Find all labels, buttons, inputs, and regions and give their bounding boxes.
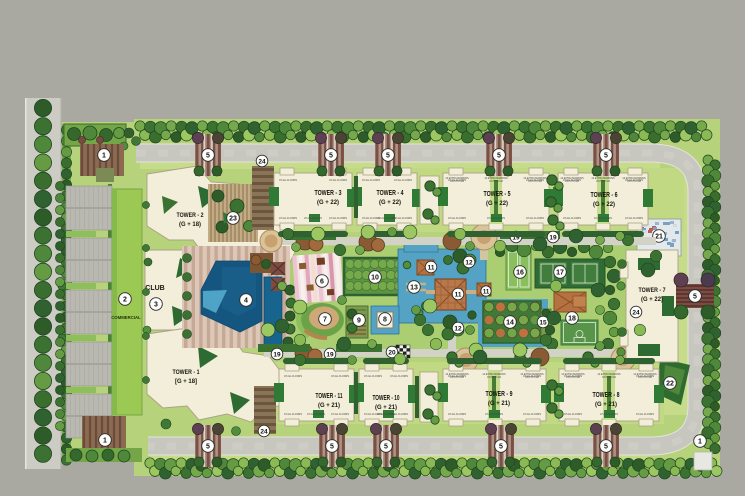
svg-text:5: 5 bbox=[604, 152, 608, 159]
svg-text:10: 10 bbox=[371, 274, 379, 281]
svg-text:ON 5TH FLR: ON 5TH FLR bbox=[602, 376, 616, 379]
svg-text:AT ALL FLOORS: AT ALL FLOORS bbox=[523, 413, 541, 416]
svg-text:5: 5 bbox=[384, 443, 388, 450]
svg-text:AT ALL FLOORS: AT ALL FLOORS bbox=[600, 413, 618, 416]
svg-text:AT ALL FLOORS: AT ALL FLOORS bbox=[284, 375, 302, 378]
svg-text:TOWER - 2: TOWER - 2 bbox=[177, 212, 204, 219]
svg-text:AT ALL FLOORS: AT ALL FLOORS bbox=[563, 217, 581, 220]
svg-text:AT ALL FLOORS: AT ALL FLOORS bbox=[448, 217, 466, 220]
svg-text:1: 1 bbox=[103, 437, 107, 444]
svg-text:(G + 21): (G + 21) bbox=[595, 401, 617, 408]
svg-text:5: 5 bbox=[329, 152, 333, 159]
svg-text:AT ALL FLOORS: AT ALL FLOORS bbox=[390, 375, 408, 378]
svg-text:24: 24 bbox=[632, 309, 640, 316]
svg-text:(G + 22): (G + 22) bbox=[486, 200, 508, 207]
svg-text:5: 5 bbox=[499, 443, 503, 450]
svg-text:(G + 18): (G + 18) bbox=[179, 221, 201, 228]
svg-text:AT ALL FLOORS: AT ALL FLOORS bbox=[523, 375, 541, 378]
svg-text:18: 18 bbox=[568, 315, 576, 322]
svg-text:1: 1 bbox=[698, 438, 702, 445]
svg-text:AT ALL FLOORS: AT ALL FLOORS bbox=[394, 217, 412, 220]
svg-text:17: 17 bbox=[556, 269, 564, 276]
svg-text:AT ALL FLOORS: AT ALL FLOORS bbox=[284, 413, 302, 416]
svg-text:5: 5 bbox=[386, 152, 390, 159]
svg-text:AT ALL FLOORS: AT ALL FLOORS bbox=[485, 413, 503, 416]
svg-text:COMMERCIAL: COMMERCIAL bbox=[111, 315, 141, 320]
svg-text:12: 12 bbox=[454, 325, 462, 332]
svg-text:AT ALL FLOORS: AT ALL FLOORS bbox=[394, 179, 412, 182]
svg-text:ON 5TH FLR: ON 5TH FLR bbox=[596, 180, 610, 183]
svg-text:AT ALL FLOORS: AT ALL FLOORS bbox=[636, 375, 654, 378]
svg-text:(G + 22): (G + 22) bbox=[317, 199, 339, 206]
svg-text:AT ALL FLOORS: AT ALL FLOORS bbox=[448, 179, 466, 182]
svg-text:9: 9 bbox=[357, 317, 361, 324]
svg-text:19: 19 bbox=[273, 351, 281, 358]
svg-text:20: 20 bbox=[388, 349, 396, 356]
svg-text:AT ALL FLOORS: AT ALL FLOORS bbox=[331, 413, 349, 416]
svg-text:5: 5 bbox=[604, 443, 608, 450]
svg-text:12: 12 bbox=[465, 259, 473, 266]
svg-text:8: 8 bbox=[383, 316, 387, 323]
svg-text:AT ALL FLOORS: AT ALL FLOORS bbox=[564, 375, 582, 378]
svg-text:AT ALL FLOORS: AT ALL FLOORS bbox=[526, 217, 544, 220]
svg-text:24: 24 bbox=[260, 428, 268, 435]
svg-text:AT ALL FLOORS: AT ALL FLOORS bbox=[625, 179, 643, 182]
svg-text:AT ALL FLOORS: AT ALL FLOORS bbox=[304, 217, 322, 220]
svg-text:TOWER - 3: TOWER - 3 bbox=[315, 190, 342, 197]
svg-text:11: 11 bbox=[483, 289, 490, 295]
svg-text:15: 15 bbox=[539, 319, 547, 326]
svg-text:19: 19 bbox=[326, 351, 334, 358]
svg-text:(G + 21): (G + 21) bbox=[488, 400, 510, 407]
svg-text:14: 14 bbox=[506, 319, 514, 326]
svg-text:TOWER - 10: TOWER - 10 bbox=[373, 395, 400, 402]
svg-text:16: 16 bbox=[516, 269, 524, 276]
svg-text:AT ALL FLOORS: AT ALL FLOORS bbox=[594, 217, 612, 220]
svg-text:AT ALL FLOORS: AT ALL FLOORS bbox=[364, 375, 382, 378]
svg-text:22: 22 bbox=[666, 380, 674, 387]
svg-text:(G + 22): (G + 22) bbox=[593, 201, 615, 208]
svg-text:AT ALL FLOORS: AT ALL FLOORS bbox=[279, 217, 297, 220]
svg-text:4: 4 bbox=[244, 297, 248, 304]
svg-text:TOWER - 4: TOWER - 4 bbox=[377, 190, 404, 197]
svg-text:21: 21 bbox=[655, 233, 663, 240]
svg-text:TOWER - 8: TOWER - 8 bbox=[593, 392, 620, 399]
svg-text:AT ALL FLOORS: AT ALL FLOORS bbox=[279, 179, 297, 182]
svg-text:23: 23 bbox=[229, 215, 237, 222]
svg-text:1: 1 bbox=[102, 152, 106, 159]
svg-text:TOWER - 1: TOWER - 1 bbox=[173, 369, 200, 376]
svg-text:5: 5 bbox=[206, 152, 210, 159]
svg-text:3: 3 bbox=[154, 301, 158, 308]
svg-text:AT ALL FLOORS: AT ALL FLOORS bbox=[448, 413, 466, 416]
svg-text:AT ALL FLOORS: AT ALL FLOORS bbox=[487, 217, 505, 220]
svg-text:TOWER - 5: TOWER - 5 bbox=[484, 191, 511, 198]
svg-text:ON 5TH FLR: ON 5TH FLR bbox=[489, 180, 503, 183]
svg-text:(G + 21): (G + 21) bbox=[375, 404, 397, 411]
svg-text:11: 11 bbox=[428, 264, 435, 271]
svg-text:AT ALL FLOORS: AT ALL FLOORS bbox=[331, 375, 349, 378]
svg-text:5: 5 bbox=[206, 443, 210, 450]
svg-text:13: 13 bbox=[410, 284, 418, 291]
svg-text:2: 2 bbox=[123, 296, 127, 303]
svg-text:AT ALL FLOORS: AT ALL FLOORS bbox=[563, 179, 581, 182]
svg-text:TOWER - 11: TOWER - 11 bbox=[316, 393, 343, 400]
svg-text:AT ALL FLOORS: AT ALL FLOORS bbox=[390, 413, 408, 416]
svg-text:(G + 22): (G + 22) bbox=[641, 296, 663, 303]
svg-text:ON 5TH FLR: ON 5TH FLR bbox=[487, 376, 501, 379]
svg-text:AT ALL FLOORS: AT ALL FLOORS bbox=[564, 413, 582, 416]
svg-text:AT ALL FLOORS: AT ALL FLOORS bbox=[362, 179, 380, 182]
svg-text:5: 5 bbox=[497, 152, 501, 159]
svg-text:AT ALL FLOORS: AT ALL FLOORS bbox=[307, 413, 325, 416]
svg-text:[G + 18]: [G + 18] bbox=[175, 378, 197, 385]
svg-text:AT ALL FLOORS: AT ALL FLOORS bbox=[329, 179, 347, 182]
svg-text:(G + 22): (G + 22) bbox=[379, 199, 401, 206]
svg-text:AT ALL FLOORS: AT ALL FLOORS bbox=[329, 217, 347, 220]
svg-text:AT ALL FLOORS: AT ALL FLOORS bbox=[636, 413, 654, 416]
svg-text:AT ALL FLOORS: AT ALL FLOORS bbox=[526, 179, 544, 182]
svg-text:AT ALL FLOORS: AT ALL FLOORS bbox=[625, 217, 643, 220]
svg-text:24: 24 bbox=[258, 158, 266, 165]
svg-text:7: 7 bbox=[323, 316, 327, 323]
svg-text:5: 5 bbox=[693, 293, 697, 300]
svg-text:11: 11 bbox=[455, 291, 462, 298]
svg-text:TOWER - 9: TOWER - 9 bbox=[486, 391, 513, 398]
svg-text:19: 19 bbox=[549, 234, 557, 241]
svg-text:AT ALL FLOORS: AT ALL FLOORS bbox=[448, 375, 466, 378]
svg-text:TOWER - 7: TOWER - 7 bbox=[639, 287, 666, 294]
svg-text:TOWER - 6: TOWER - 6 bbox=[591, 192, 618, 199]
svg-text:5: 5 bbox=[330, 443, 334, 450]
svg-text:6: 6 bbox=[320, 278, 324, 285]
svg-text:(G + 21): (G + 21) bbox=[318, 402, 340, 409]
